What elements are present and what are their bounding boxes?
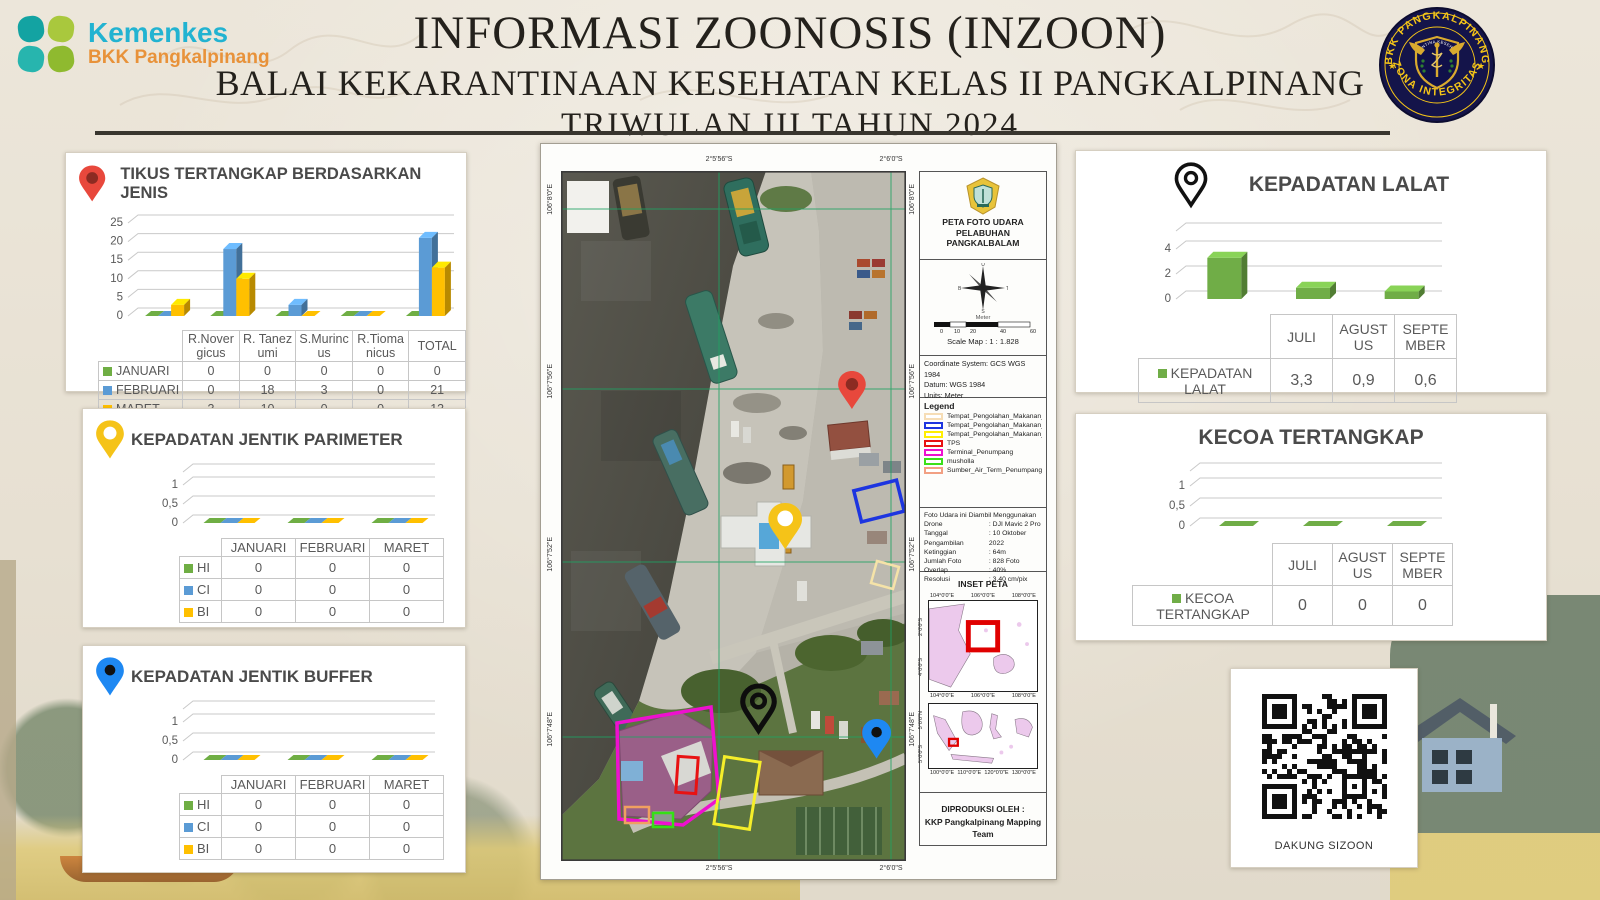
col-header: R.Novergicus: [183, 331, 240, 362]
legend-swatch: [103, 367, 112, 376]
svg-text:10: 10: [110, 273, 123, 285]
table-row: KEPADATAN LALAT 3,30,90,6: [1139, 359, 1457, 403]
black-pin-outline-icon: [1173, 161, 1209, 209]
red-pin-icon: [78, 163, 106, 205]
svg-text:2: 2: [1165, 268, 1171, 280]
kecoa-chart-title: KECOA TERTANGKAP: [1088, 426, 1534, 450]
table-row: FEBRUARI 0183021: [99, 381, 466, 400]
lalat-bar-chart: 420: [1124, 209, 1464, 307]
legend-item: Tempat_Pengolahan_Makanan_2: [924, 422, 1042, 429]
zona-integritas-badge: BKK PANGKALPINANG ZONA INTEGRITAS ★ ★ KA…: [1377, 5, 1497, 125]
legend-item: TPS: [924, 440, 1042, 447]
qr-caption: DAKUNG SIZOON: [1231, 840, 1417, 852]
aerial-photo: [561, 171, 906, 861]
coord-label-top: 2°5'56"S: [706, 156, 733, 163]
col-header: TOTAL: [409, 331, 466, 362]
title-line-3: TRIWULAN III TAHUN 2024: [150, 107, 1430, 144]
panel-coordinate-section: Coordinate System: GCS WGS 1984 Datum: W…: [920, 356, 1046, 398]
coord-label-right: 106°8'0"E: [909, 184, 916, 215]
legend-item: Sumber_Air_Term_Penumpang: [924, 467, 1042, 474]
map-info-panel: PETA FOTO UDARA PELABUHAN PANGKALBALAM U…: [919, 171, 1047, 846]
svg-text:0: 0: [1165, 293, 1171, 305]
col-header: R.Tiomanicus: [352, 331, 409, 362]
svg-text:0,5: 0,5: [1169, 500, 1185, 512]
blue-pin-icon: [95, 656, 125, 698]
lalat-data-table: JULIAGUSTUSSEPTEMBER KEPADATAN LALAT 3,3…: [1138, 314, 1457, 403]
svg-text:0,5: 0,5: [162, 735, 178, 747]
lalat-chart-title: KEPADATAN LALAT: [1249, 173, 1449, 197]
svg-text:0,5: 0,5: [162, 498, 178, 510]
col-header: R. Tanezumi: [239, 331, 296, 362]
coord-label-bottom: 2°5'56"S: [706, 865, 733, 872]
legend-item: Tempat_Pengolahan_Makanan_3: [924, 413, 1042, 420]
table-row: BI000: [180, 601, 444, 623]
coord-label-top: 2°6'0"S: [880, 156, 903, 163]
title-line-2: BALAI KEKARANTINAAN KESEHATAN KELAS II P…: [150, 62, 1430, 104]
aerial-map-sheet: 2°5'56"S 2°6'0"S 2°5'56"S 2°6'0"S 106°8'…: [540, 143, 1057, 880]
panel-compass-scale-section: U T S B Meter 0 10 20 40 60 Scale Map : …: [920, 260, 1046, 356]
legend-swatch: [103, 386, 112, 395]
coord-label-left: 106°8'0"E: [547, 184, 554, 215]
header-rule: [95, 131, 1390, 135]
watercolor-left-strip: [0, 560, 16, 900]
scale-bar: 0 10 20 40 60: [932, 321, 1034, 335]
coord-label-right: 106°7'48"E: [909, 712, 916, 747]
compass-rose-icon: U T S B: [958, 263, 1008, 313]
jentik-parimeter-table: JANUARIFEBRUARIMARET HI000 CI000 BI000: [179, 538, 444, 623]
tikus-data-table: R.Novergicus R. Tanezumi S.Murincus R.Ti…: [98, 330, 466, 419]
aerial-photo-frame: [561, 171, 906, 861]
tikus-bar-chart: 2520151050: [94, 205, 466, 323]
qr-card: DAKUNG SIZOON: [1230, 668, 1418, 868]
legend-item: Tempat_Pengolahan_Makanan_1: [924, 431, 1042, 438]
coord-label-left: 106°7'48"E: [547, 712, 554, 747]
table-row: CI000: [180, 579, 444, 601]
svg-text:0: 0: [117, 310, 123, 322]
card-kepadatan-lalat: KEPADATAN LALAT 420 JULIAGUSTUSSEPTEMBER…: [1075, 150, 1547, 393]
kecoa-bar-chart: 10,50: [1128, 450, 1468, 536]
panel-drone-info-section: Foto Udara ini Diambil Menggunakan Drone…: [920, 508, 1046, 572]
qr-code: [1249, 681, 1399, 831]
table-row: HI000: [180, 794, 444, 816]
table-header-row: JULIAGUSTUSSEPTEMBER: [1133, 544, 1453, 586]
svg-text:1: 1: [172, 479, 178, 491]
map-title-2: PELABUHAN PANGKALBALAM: [924, 228, 1042, 249]
table-header-row: R.Novergicus R. Tanezumi S.Murincus R.Ti…: [99, 331, 466, 362]
svg-text:1: 1: [1179, 480, 1185, 492]
jentik-parimeter-title: KEPADATAN JENTIK PARIMETER: [131, 430, 403, 450]
panel-credit-section: DIPRODUKSI OLEH : KKP Pangkalpinang Mapp…: [920, 793, 1046, 845]
svg-text:0: 0: [172, 517, 178, 529]
coord-label-left: 106°7'52"E: [547, 537, 554, 572]
svg-text:U: U: [981, 263, 985, 268]
panel-legend-section: Legend Tempat_Pengolahan_Makanan_3 Tempa…: [920, 398, 1046, 508]
yellow-pin-icon: [95, 419, 125, 461]
svg-text:25: 25: [110, 217, 123, 229]
scale-text: Scale Map : 1 : 1.828: [924, 337, 1042, 346]
table-row: BI000: [180, 838, 444, 860]
svg-text:T: T: [1006, 286, 1008, 292]
tikus-chart-title: TIKUS TERTANGKAP BERDASARKAN JENIS: [120, 165, 454, 203]
jentik-buffer-title: KEPADATAN JENTIK BUFFER: [131, 667, 373, 687]
card-kecoa-tertangkap: KECOA TERTANGKAP 10,50 JULIAGUSTUSSEPTEM…: [1075, 413, 1547, 641]
card-tikus-tertangkap: TIKUS TERTANGKAP BERDASARKAN JENIS 25201…: [65, 152, 467, 392]
svg-text:15: 15: [110, 254, 123, 266]
coord-label-left: 106°7'56"E: [547, 364, 554, 399]
inset-map-2: 5°0'0"N 5°0'0"S: [928, 703, 1038, 769]
svg-text:20: 20: [110, 236, 123, 248]
legend-title: Legend: [924, 401, 1042, 411]
table-row: HI000: [180, 557, 444, 579]
table-header-row: JANUARIFEBRUARIMARET: [180, 776, 444, 794]
svg-text:B: B: [958, 286, 962, 292]
svg-text:★: ★: [1388, 61, 1396, 71]
title-line-1: INFORMASI ZOONOSIS (INZOON): [150, 6, 1430, 60]
jentik-parimeter-chart: 10,50: [139, 461, 449, 533]
map-crest-icon: [963, 177, 1003, 215]
panel-title-section: PETA FOTO UDARA PELABUHAN PANGKALBALAM: [920, 172, 1046, 260]
table-row: CI000: [180, 816, 444, 838]
table-header-row: JULIAGUSTUSSEPTEMBER: [1139, 315, 1457, 359]
card-jentik-buffer: KEPADATAN JENTIK BUFFER 10,50 JANUARIFEB…: [82, 645, 466, 873]
svg-text:0: 0: [1179, 520, 1185, 532]
table-header-row: JANUARIFEBRUARIMARET: [180, 539, 444, 557]
col-header: S.Murincus: [296, 331, 353, 362]
card-jentik-parimeter: KEPADATAN JENTIK PARIMETER 10,50 JANUARI…: [82, 408, 466, 628]
map-title-1: PETA FOTO UDARA: [924, 217, 1042, 228]
legend-item: musholla: [924, 458, 1042, 465]
coord-label-right: 106°7'52"E: [909, 537, 916, 572]
svg-text:1: 1: [172, 716, 178, 728]
coord-label-right: 106°7'56"E: [909, 364, 916, 399]
svg-text:0: 0: [172, 754, 178, 766]
kecoa-data-table: JULIAGUSTUSSEPTEMBER KECOA TERTANGKAP 00…: [1132, 543, 1453, 626]
inset-title: INSET PETA: [924, 579, 1042, 590]
page-title: INFORMASI ZOONOSIS (INZOON) BALAI KEKARA…: [150, 6, 1430, 144]
svg-text:5: 5: [117, 291, 123, 303]
inzoon-infographic: { "header": { "brand": { "name": "Kemenk…: [0, 0, 1600, 900]
coord-label-bottom: 2°6'0"S: [880, 865, 903, 872]
panel-inset-section: INSET PETA 104°0'0"E106°0'0"E108°0'0"E 2…: [920, 572, 1046, 793]
inset-map-1: 2°0'0"S 4°0'0"S: [928, 600, 1038, 692]
legend-item: Terminal_Penumpang: [924, 449, 1042, 456]
svg-text:4: 4: [1165, 243, 1172, 255]
kemenkes-logo: [14, 12, 78, 76]
jentik-buffer-chart: 10,50: [139, 698, 449, 770]
svg-text:★: ★: [1477, 61, 1485, 71]
jentik-buffer-table: JANUARIFEBRUARIMARET HI000 CI000 BI000: [179, 775, 444, 860]
table-row: JANUARI 00000: [99, 362, 466, 381]
svg-text:S: S: [981, 309, 985, 313]
table-row: KECOA TERTANGKAP 000: [1133, 586, 1453, 626]
